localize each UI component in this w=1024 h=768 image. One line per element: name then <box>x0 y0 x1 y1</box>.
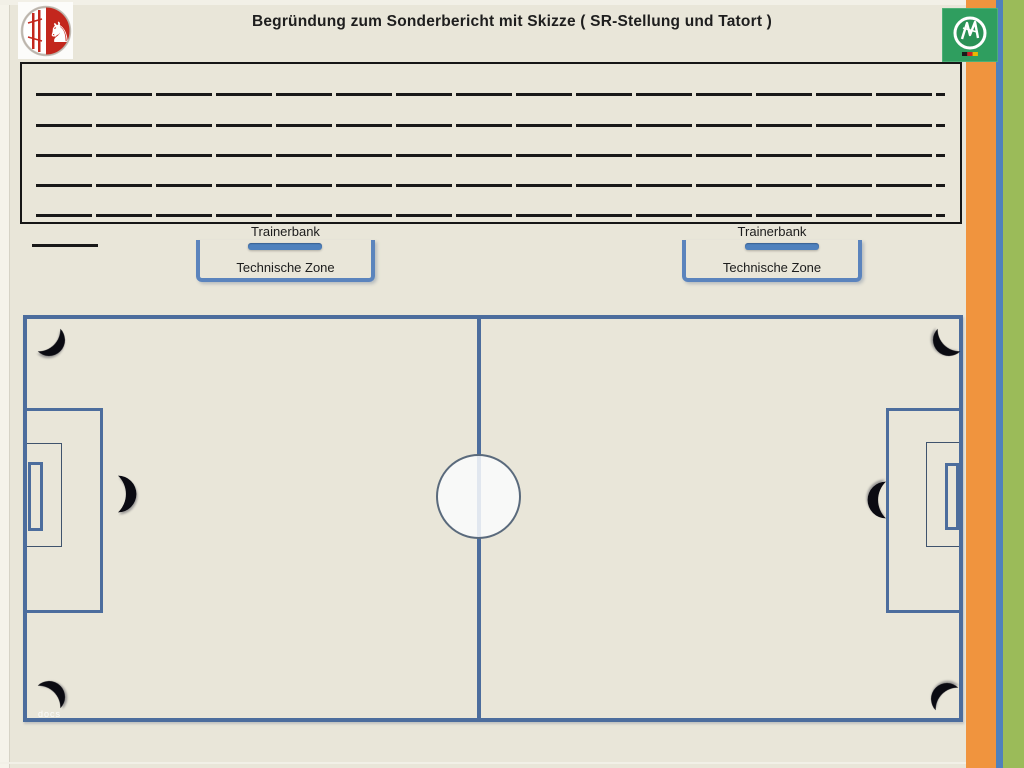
page-edge-bottom <box>0 762 966 764</box>
watermark-text: docs <box>38 709 61 719</box>
report-form-page: Begründung zum Sonderbericht mit Skizze … <box>0 0 1024 768</box>
penalty-arc-left-icon <box>95 471 141 517</box>
stripe-blue <box>996 0 1003 768</box>
penalty-arc-right-icon <box>863 477 909 523</box>
write-line <box>36 124 945 127</box>
dfb-logo <box>942 8 998 62</box>
report-text-box <box>20 62 962 224</box>
stripe-green <box>1003 0 1024 768</box>
goal-right <box>945 463 959 530</box>
flvw-crest-icon: ♞ <box>20 5 72 57</box>
dfb-logo-icon <box>942 8 998 62</box>
goal-left <box>28 462 43 531</box>
stub-line <box>32 244 98 247</box>
stripe-orange <box>966 0 996 768</box>
write-line <box>36 184 945 187</box>
technical-zone-label-left: Technische Zone <box>196 260 375 275</box>
bench-bar-left <box>248 243 322 250</box>
write-line <box>36 154 945 157</box>
bench-zone-right: Trainerbank Technische Zone <box>682 224 862 286</box>
write-line <box>36 93 945 96</box>
page-title: Begründung zum Sonderbericht mit Skizze … <box>0 13 1024 31</box>
technical-zone-label-right: Technische Zone <box>682 260 862 275</box>
bench-label-right: Trainerbank <box>682 224 862 239</box>
page-edge-left <box>0 0 10 768</box>
center-circle <box>436 454 521 539</box>
write-line <box>36 214 945 217</box>
page-edge-top <box>0 0 1024 5</box>
bench-label-left: Trainerbank <box>196 224 375 239</box>
bench-bar-right <box>745 243 819 250</box>
soccer-field-diagram: docs <box>23 315 963 722</box>
flvw-crest-logo: ♞ <box>18 2 73 59</box>
corner-arc-top-left-icon <box>21 312 78 369</box>
bench-zone-left: Trainerbank Technische Zone <box>196 224 375 286</box>
